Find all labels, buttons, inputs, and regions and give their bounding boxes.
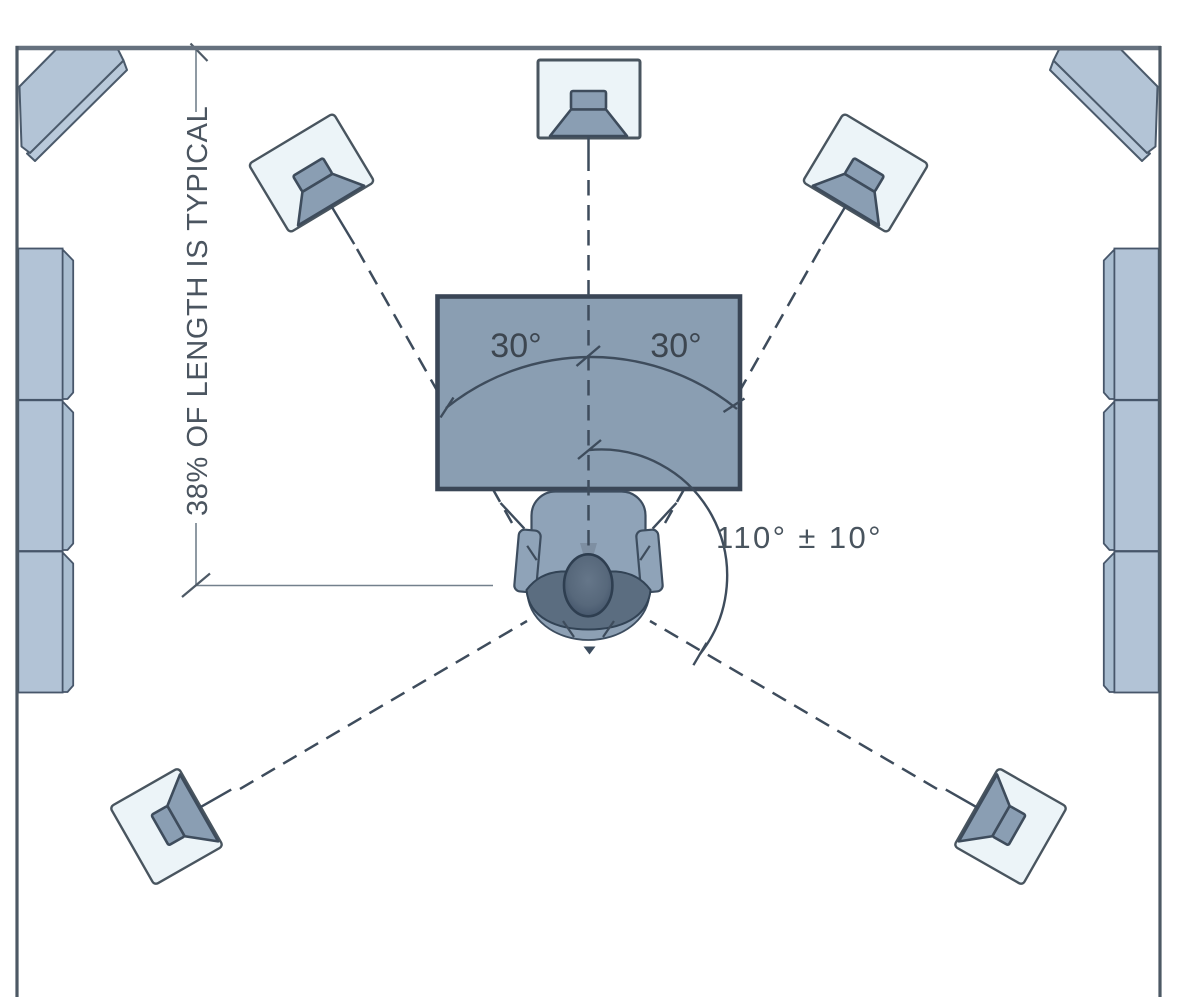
- svg-text:30°: 30°: [490, 327, 541, 365]
- svg-text:30°: 30°: [650, 327, 701, 365]
- svg-text:110° ± 10°: 110° ± 10°: [716, 520, 883, 555]
- svg-text:38% OF LENGTH IS TYPICAL: 38% OF LENGTH IS TYPICAL: [182, 106, 214, 516]
